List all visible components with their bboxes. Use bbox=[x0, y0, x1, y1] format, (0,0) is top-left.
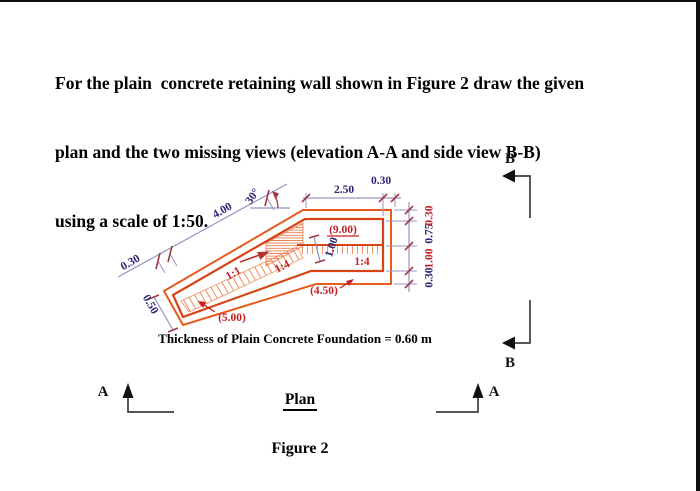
label-tip-length: (5.00) bbox=[218, 312, 246, 324]
section-b-top-label: B bbox=[505, 151, 515, 167]
dim-stem-width: 1.00 bbox=[323, 236, 341, 259]
section-b-top-arrow-icon bbox=[502, 170, 515, 183]
foundation-thickness-note: Thickness of Plain Concrete Foundation =… bbox=[135, 331, 455, 347]
section-a-right: A bbox=[436, 383, 500, 412]
dim-right-4: 0.30 bbox=[424, 205, 436, 225]
section-b-bottom-arrow-icon bbox=[502, 337, 515, 350]
dim-angle: 30° bbox=[243, 186, 262, 206]
section-a-left: A bbox=[98, 383, 174, 412]
right-dimension: 0.30 1.00 0.75 0.30 bbox=[386, 202, 436, 292]
section-a-right-arrow-icon bbox=[473, 383, 484, 398]
section-b-top: B bbox=[502, 151, 530, 218]
section-b-bottom: B bbox=[502, 300, 530, 371]
dim-top-edge: 0.30 bbox=[371, 175, 391, 187]
section-a-right-label: A bbox=[489, 384, 500, 400]
figure-caption: Figure 2 bbox=[235, 440, 365, 458]
label-slope-mid: 1:4 bbox=[354, 256, 370, 268]
view-title-text: Plan bbox=[283, 391, 317, 411]
dim-top-width: 2.50 bbox=[334, 184, 354, 196]
dim-right-1: 0.30 bbox=[424, 267, 436, 287]
dim-diag-length: 4.00 bbox=[211, 201, 235, 222]
label-bottom-length: (4.50) bbox=[310, 285, 338, 297]
tip-dimension: 0.50 bbox=[140, 293, 178, 332]
view-title: Plan bbox=[250, 391, 350, 409]
label-inner-length: (9.00) bbox=[329, 224, 357, 236]
section-a-left-label: A bbox=[98, 384, 109, 400]
section-b-bottom-label: B bbox=[505, 355, 515, 371]
plan-drawing: 0.30 4.00 30° 2.50 0.30 bbox=[0, 0, 700, 491]
section-a-left-arrow-icon bbox=[123, 383, 134, 398]
dim-right-2: 1.00 bbox=[424, 248, 436, 268]
